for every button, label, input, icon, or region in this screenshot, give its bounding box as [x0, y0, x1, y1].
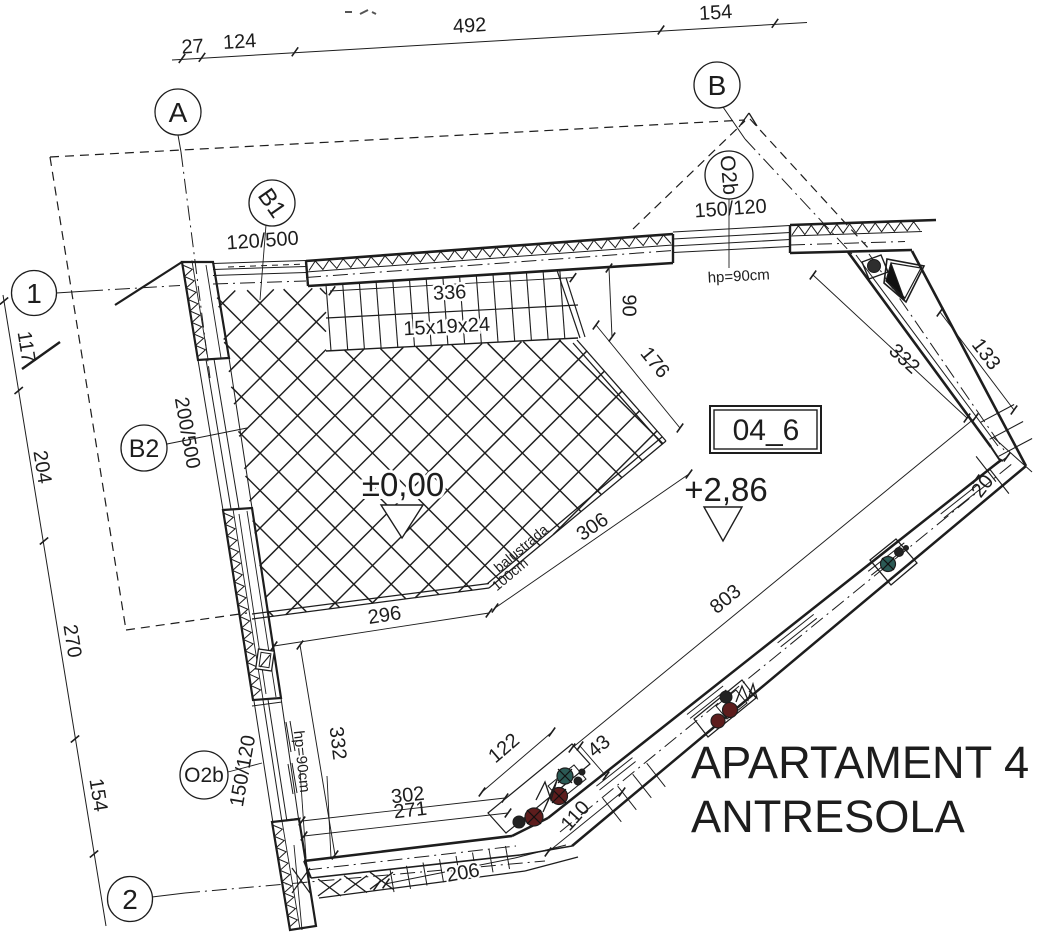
svg-text:332: 332 [325, 725, 351, 761]
svg-text:B: B [708, 70, 727, 101]
svg-text:271: 271 [393, 798, 429, 824]
svg-text:hp=90cm: hp=90cm [707, 266, 770, 286]
svg-text:154: 154 [698, 1, 733, 25]
svg-text:B2: B2 [129, 435, 160, 463]
svg-text:A: A [169, 97, 188, 128]
svg-text:124: 124 [222, 30, 257, 54]
svg-text:O2b: O2b [184, 764, 224, 787]
svg-text:2: 2 [122, 884, 138, 915]
svg-text:APARTAMENT 4: APARTAMENT 4 [691, 737, 1029, 788]
svg-text:1: 1 [26, 278, 42, 309]
svg-text:336: 336 [432, 281, 467, 305]
svg-text:27: 27 [181, 35, 205, 58]
svg-text:+2,86: +2,86 [684, 471, 768, 508]
svg-text:492: 492 [452, 14, 487, 38]
svg-text:90: 90 [618, 294, 640, 316]
svg-text:ANTRESOLA: ANTRESOLA [691, 791, 966, 842]
svg-text:±0,00: ±0,00 [362, 466, 444, 503]
svg-text:O2b: O2b [715, 154, 741, 196]
svg-text:04_6: 04_6 [733, 414, 800, 447]
